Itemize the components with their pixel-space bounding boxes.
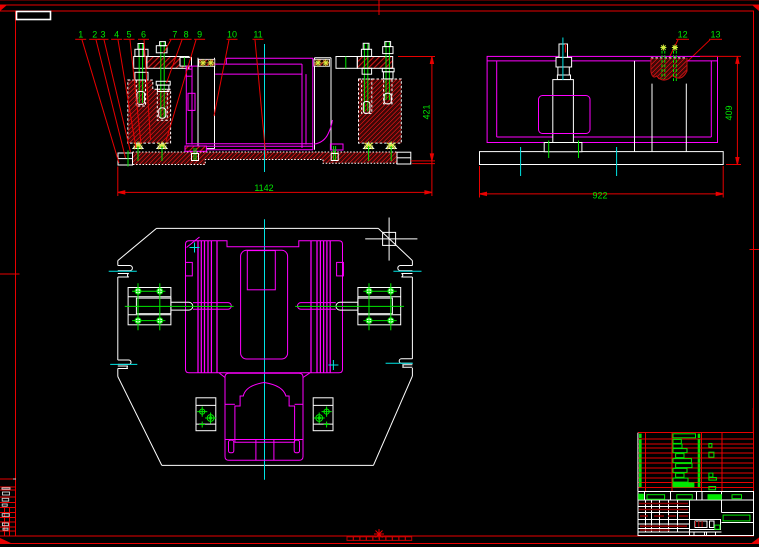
svg-text:8: 8 <box>184 30 189 40</box>
svg-text:4: 4 <box>114 30 119 40</box>
svg-text:5: 5 <box>126 30 131 40</box>
svg-text:9: 9 <box>197 30 202 40</box>
svg-text:409: 409 <box>724 105 734 120</box>
svg-text:12: 12 <box>678 30 688 40</box>
svg-text:10: 10 <box>227 30 237 40</box>
svg-text:7: 7 <box>172 30 177 40</box>
svg-text:3: 3 <box>100 30 105 40</box>
svg-text:421: 421 <box>422 104 432 119</box>
svg-text:2: 2 <box>92 30 97 40</box>
svg-text:11: 11 <box>253 30 262 40</box>
svg-text:1142: 1142 <box>254 183 273 193</box>
svg-text:13: 13 <box>710 30 720 40</box>
svg-text:6: 6 <box>141 30 146 40</box>
svg-text:1: 1 <box>78 30 83 40</box>
svg-text:922: 922 <box>592 191 607 201</box>
